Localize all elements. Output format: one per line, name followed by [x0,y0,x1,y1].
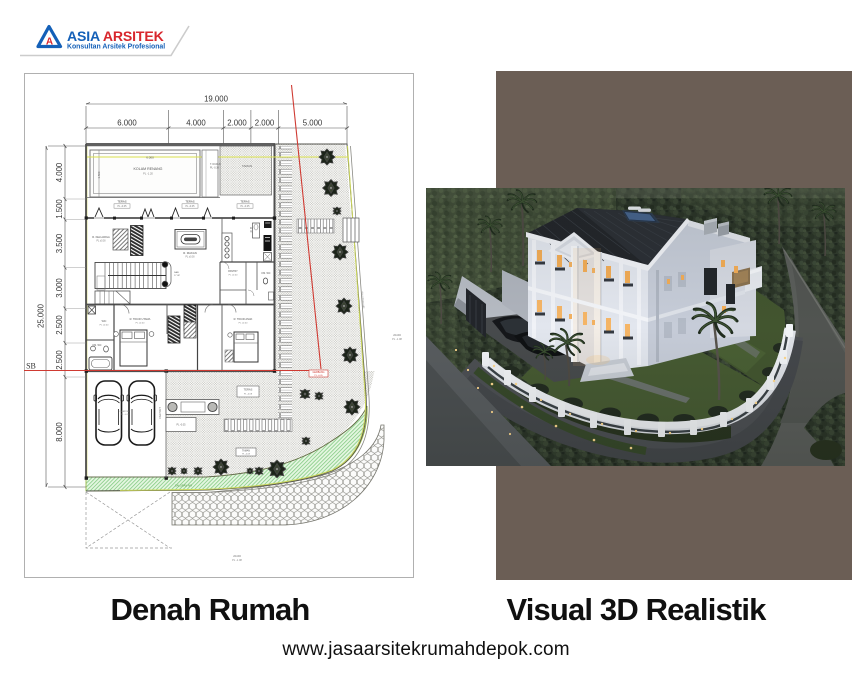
svg-text:SALURAN AIR: SALURAN AIR [175,484,192,488]
svg-text:2.500: 2.500 [55,350,64,370]
svg-text:3.000: 3.000 [55,278,64,298]
svg-text:CARPORT: CARPORT [159,407,162,419]
svg-text:Konsultan Arsitek Profesional: Konsultan Arsitek Profesional [67,43,165,50]
svg-text:KM. WC: KM. WC [262,272,271,275]
svg-text:TERAS: TERAS [117,200,126,204]
svg-text:TAMAN: TAMAN [242,164,252,168]
svg-text:PL -1.08: PL -1.08 [392,337,402,341]
svg-text:2.000: 2.000 [227,119,247,128]
svg-text:PL -0.05: PL -0.05 [177,424,187,427]
svg-text:PL ±0.00: PL ±0.00 [96,241,106,243]
svg-text:PL -0.08: PL -0.08 [242,454,251,456]
svg-text:PL -0.30: PL -0.30 [210,167,220,170]
svg-text:PL -0.05: PL -0.05 [118,205,128,208]
svg-text:4.000: 4.000 [55,162,64,182]
svg-text:TERAS: TERAS [244,388,253,392]
svg-text:PL -0.08: PL -0.08 [244,394,253,396]
svg-text:GERBANG: GERBANG [313,371,325,374]
svg-text:6.000: 6.000 [146,156,154,160]
svg-text:TERAS: TERAS [240,200,249,204]
svg-text:R. KELUARGA: R. KELUARGA [92,235,110,239]
svg-text:KOLAM RENANG: KOLAM RENANG [134,167,163,171]
svg-text:8.000: 8.000 [55,422,64,442]
svg-text:PL -0.05: PL -0.05 [314,375,323,377]
svg-text:R. MAKAN: R. MAKAN [183,251,197,255]
svg-text:PL -0.05: PL -0.05 [121,414,129,416]
svg-text:PL -1.20: PL -1.20 [143,172,153,176]
svg-text:17 UP: 17 UP [174,275,181,277]
svg-text:TAMAN: TAMAN [242,449,250,452]
svg-text:CARPORT: CARPORT [120,410,131,413]
svg-text:WIC: WIC [102,320,107,323]
svg-text:4.000: 4.000 [186,119,206,128]
svg-text:2.000: 2.000 [255,119,275,128]
svg-text:R. TIDUR UTAMA: R. TIDUR UTAMA [130,317,151,321]
svg-text:NAIK: NAIK [174,271,180,274]
svg-text:ASIA ARSITEK: ASIA ARSITEK [67,28,165,44]
svg-text:R. TIDUR ANAK: R. TIDUR ANAK [234,317,253,321]
svg-text:1.500: 1.500 [55,199,64,219]
svg-text:PL ±0.00: PL ±0.00 [229,275,238,277]
svg-text:TERAS: TERAS [185,200,194,204]
svg-text:SB: SB [26,362,36,371]
svg-text:PL -0.05: PL -0.05 [241,205,251,208]
svg-text:1.500: 1.500 [97,171,101,178]
svg-text:PL ±0.00: PL ±0.00 [239,323,248,325]
svg-text:PL ±0.00: PL ±0.00 [136,323,145,325]
svg-text:PL ±0.00: PL ±0.00 [100,324,109,326]
svg-text:2.500: 2.500 [55,315,64,335]
svg-text:6.000: 6.000 [117,119,137,128]
svg-text:PL -1.08: PL -1.08 [232,558,242,562]
svg-text:25.000: 25.000 [37,303,46,328]
svg-text:5.000: 5.000 [303,119,323,128]
svg-text:24.00: 24.00 [393,333,401,337]
svg-text:PANTRY: PANTRY [228,270,238,273]
svg-text:3.500: 3.500 [55,233,64,253]
svg-text:19.000: 19.000 [204,95,229,104]
svg-text:PL -0.05: PL -0.05 [186,205,196,208]
svg-text:24.00: 24.00 [233,554,241,558]
svg-text:A: A [46,37,53,48]
svg-text:PL ±0.00: PL ±0.00 [185,257,195,259]
